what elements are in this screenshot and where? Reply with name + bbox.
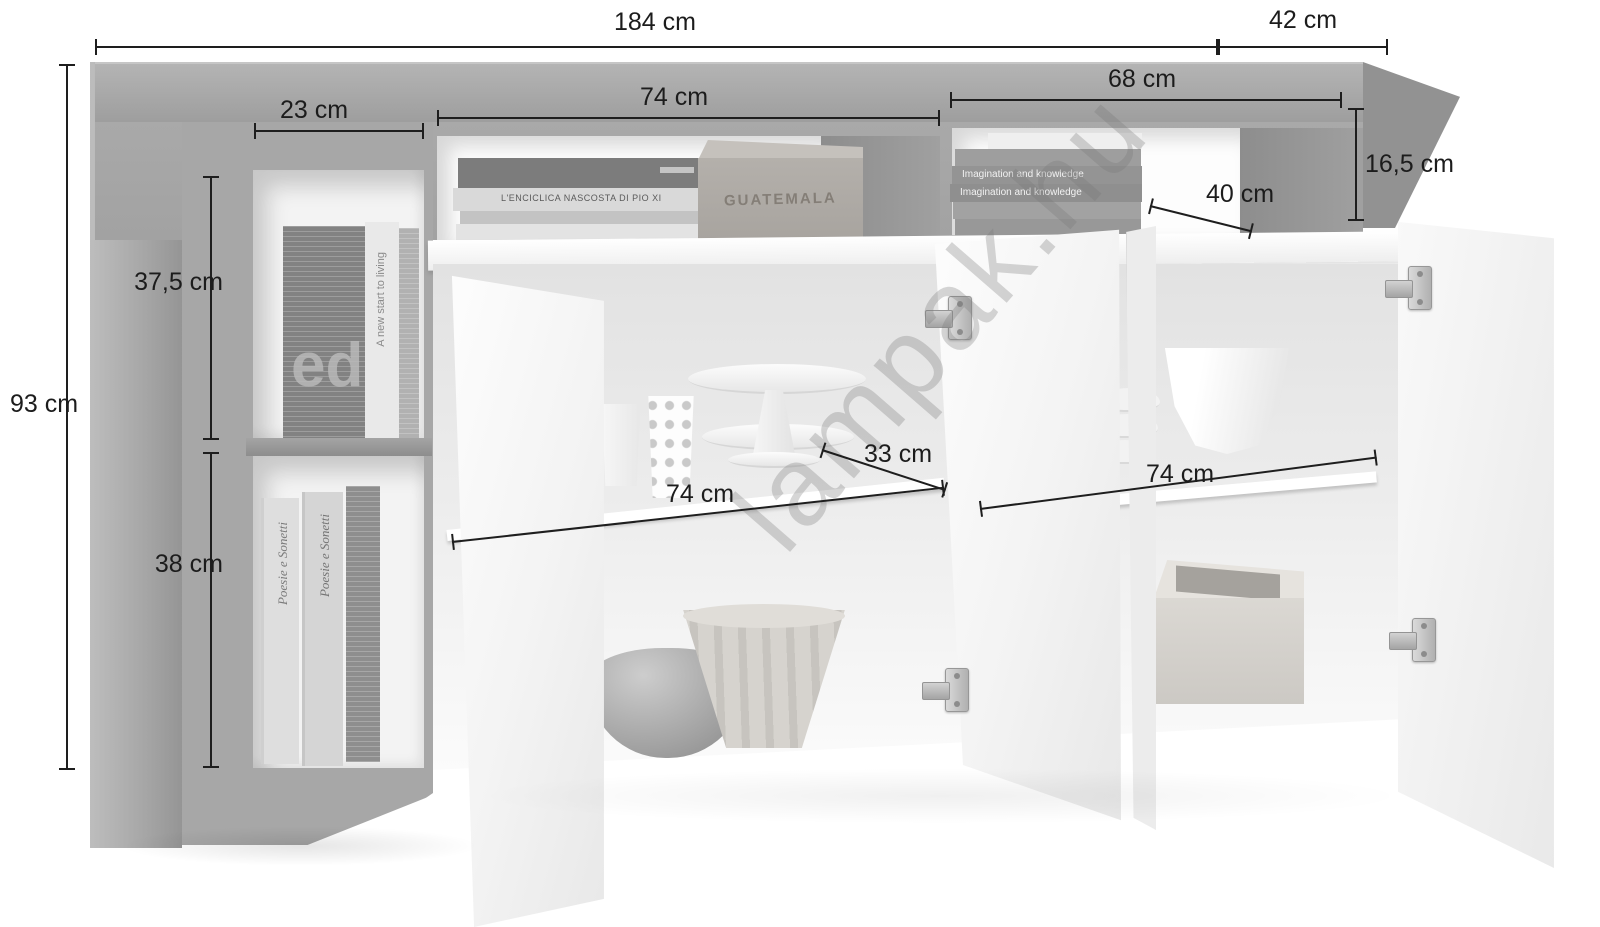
dimension-line-niche-height: [1355, 108, 1357, 221]
product-dimension-diagram: L'ENCICLICA NASCOSTA DI PIO XI GUATEMALA…: [0, 0, 1600, 927]
hinge-middle-lower: [945, 668, 969, 712]
dimension-label-top-middle-niche: 74 cm: [614, 83, 734, 112]
book-poesie-2-spine-text: Poesie e Sonetti: [317, 514, 333, 597]
dimension-line-top-right-niche: [950, 99, 1342, 101]
book-gray-2: [953, 202, 1141, 219]
book-imagination-2: Imagination and knowledge: [950, 184, 1142, 202]
book-imagination-1: Imagination and knowledge: [952, 166, 1142, 184]
book-imagination-spine-text: Imagination and knowledge: [962, 169, 1084, 180]
book-enciclica: L'ENCICLICA NASCOSTA DI PIO XI: [453, 188, 709, 211]
book-sliver: [399, 228, 419, 440]
cup-plain: [598, 404, 644, 486]
book-poesie-1: Poesie e Sonetti: [261, 498, 299, 764]
book-ed-cover: ed: [283, 226, 367, 442]
hinge-middle-upper: [948, 296, 972, 340]
book-newstart-spine: A new start to living: [365, 222, 399, 442]
cake-stand-plate: [688, 364, 866, 394]
hinge-right-upper: [1408, 266, 1432, 310]
book-stack-top-dark: [458, 158, 708, 188]
dimension-label-height: 93 cm: [2, 390, 74, 419]
dimension-line-top-middle-niche: [437, 117, 940, 119]
hinge-right-lower: [1412, 618, 1436, 662]
book-ed-cover-text: ed: [291, 330, 363, 401]
wooden-box-front: [1152, 598, 1304, 704]
dimension-label-depth: 42 cm: [1238, 6, 1368, 35]
dimension-line-upper-shelf-height: [210, 176, 212, 440]
left-column-lower-compartment: Poesie e Sonetti Poesie e Sonetti: [253, 456, 424, 768]
floor-shadow-right: [470, 768, 1410, 824]
dimension-label-upper-shelf-height: 37,5 cm: [120, 268, 235, 297]
book-enciclica-spine-text: L'ENCICLICA NASCOSTA DI PIO XI: [501, 193, 662, 203]
dimension-label-left-cabinet-width: 74 cm: [640, 480, 760, 509]
book-imagination-spine-text-2: Imagination and knowledge: [960, 187, 1082, 198]
floor-shadow-left: [120, 826, 480, 866]
wooden-bowl-rim: [683, 604, 845, 628]
left-column-shelf-board: [246, 438, 432, 456]
book-gray-1: [955, 149, 1141, 166]
dimension-line-depth: [1218, 46, 1388, 48]
book-poesie-2: Poesie e Sonetti: [302, 492, 343, 766]
dimension-label-right-cabinet-width: 74 cm: [1120, 460, 1240, 489]
wooden-crate: GUATEMALA: [698, 158, 863, 240]
cake-stand-foot: [728, 452, 820, 468]
left-column-upper-compartment: ed A new start to living: [253, 170, 424, 438]
book-white-thin: [988, 133, 1142, 149]
door-edge-on: [1126, 226, 1156, 830]
dimension-label-left-compartment-width: 23 cm: [254, 96, 374, 125]
dimension-label-top-right-niche: 68 cm: [1082, 65, 1202, 94]
dimension-label-lower-shelf-height: 38 cm: [120, 550, 235, 579]
dimension-label-total-width: 184 cm: [590, 8, 720, 37]
dimension-line-left-compartment-width: [254, 130, 424, 132]
book-poesie-1-spine-text: Poesie e Sonetti: [275, 522, 291, 605]
dimension-line-total-width: [95, 46, 1218, 48]
book-textured: [346, 486, 380, 762]
crate-stencil-text: GUATEMALA: [724, 189, 837, 209]
dimension-label-middle-cabinet-width: 33 cm: [838, 440, 958, 469]
dimension-label-niche-depth: 40 cm: [1180, 180, 1300, 209]
dimension-label-niche-height: 16,5 cm: [1365, 150, 1485, 179]
book-thin: [460, 211, 698, 224]
book-newstart-spine-text: A new start to living: [375, 252, 387, 347]
door-right-open: [1398, 218, 1556, 870]
book-cover-text-mark: [660, 167, 694, 173]
sideboard-right-side-panel: [1363, 62, 1460, 228]
dimension-line-lower-shelf-height: [210, 452, 212, 768]
